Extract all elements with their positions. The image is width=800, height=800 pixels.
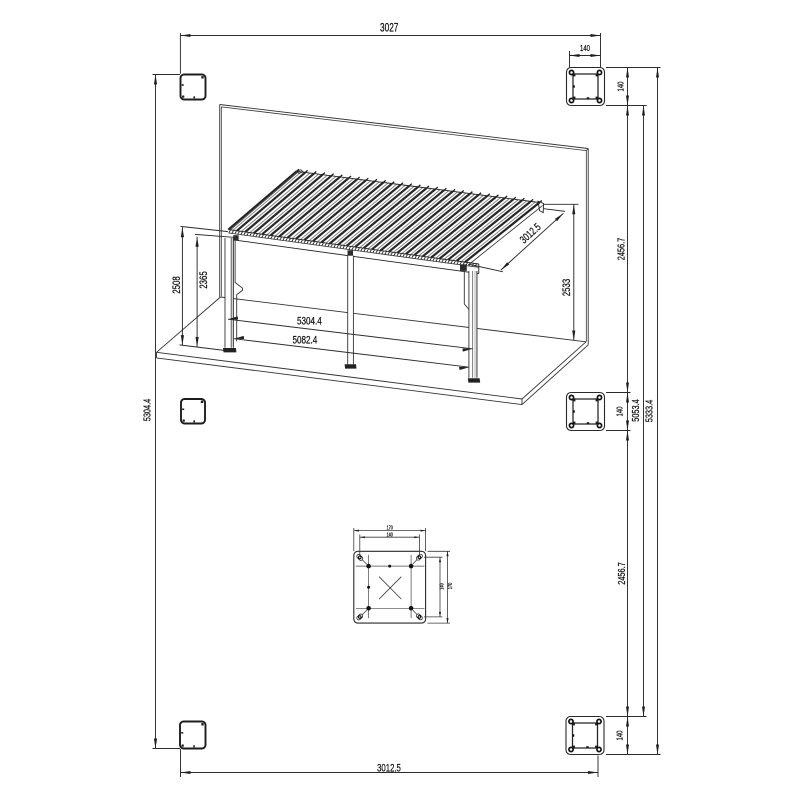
svg-text:170: 170 bbox=[447, 582, 453, 589]
svg-text:3027: 3027 bbox=[380, 22, 399, 35]
svg-text:2365: 2365 bbox=[197, 271, 210, 288]
svg-text:170: 170 bbox=[387, 525, 394, 531]
svg-text:140: 140 bbox=[614, 407, 624, 417]
svg-text:140: 140 bbox=[614, 731, 624, 741]
svg-text:5082.4: 5082.4 bbox=[292, 334, 317, 347]
svg-text:140: 140 bbox=[439, 583, 445, 590]
svg-text:2508: 2508 bbox=[170, 276, 183, 293]
svg-text:5053.4: 5053.4 bbox=[630, 399, 641, 421]
svg-text:140: 140 bbox=[580, 43, 590, 53]
svg-text:5304.4: 5304.4 bbox=[297, 315, 322, 328]
svg-text:2533: 2533 bbox=[559, 279, 572, 296]
svg-text:3012.5: 3012.5 bbox=[377, 761, 401, 774]
svg-text:140: 140 bbox=[387, 532, 394, 538]
svg-text:2456.7: 2456.7 bbox=[615, 238, 626, 260]
svg-text:5333.4: 5333.4 bbox=[644, 400, 655, 422]
svg-text:5304.4: 5304.4 bbox=[142, 399, 153, 421]
svg-text:140: 140 bbox=[616, 82, 626, 92]
svg-text:2456.7: 2456.7 bbox=[616, 562, 627, 584]
